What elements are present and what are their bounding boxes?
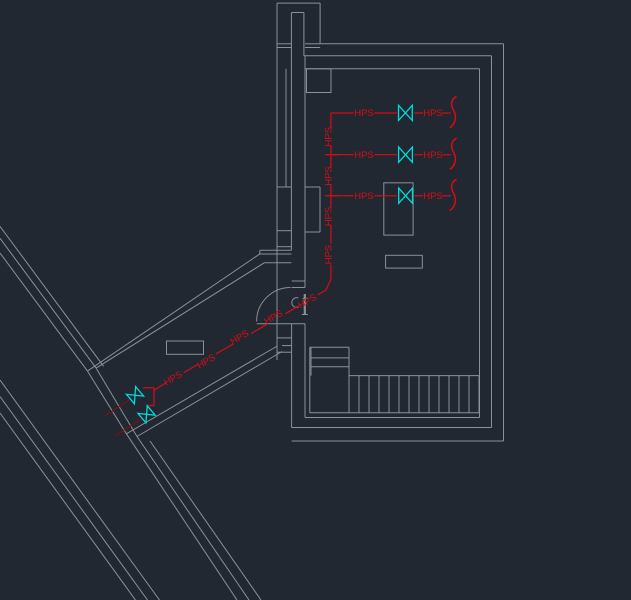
svg-text:HPS: HPS (324, 127, 335, 147)
svg-text:HPS: HPS (324, 166, 335, 186)
svg-text:HPS: HPS (423, 108, 443, 119)
svg-text:HPS: HPS (354, 150, 374, 161)
svg-text:HPS: HPS (324, 245, 335, 265)
svg-text:HPS: HPS (324, 207, 335, 227)
svg-text:HPS: HPS (423, 150, 443, 161)
svg-text:HPS: HPS (423, 191, 443, 202)
svg-text:HPS: HPS (354, 191, 374, 202)
svg-text:HPS: HPS (354, 108, 374, 119)
